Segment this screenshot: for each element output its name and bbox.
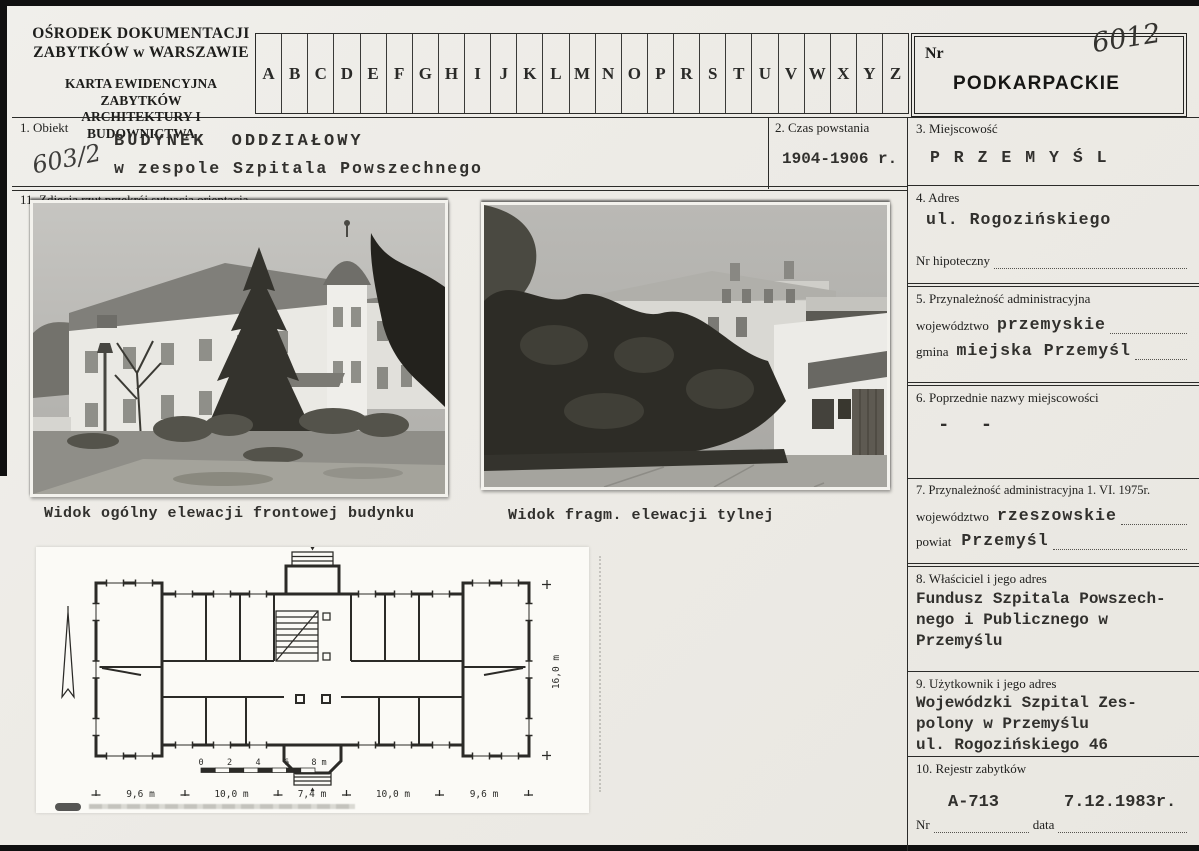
register-number-value: A-713: [948, 793, 999, 812]
photo-rear-elevation: [481, 202, 890, 490]
field-town-label: 3. Miejscowość: [916, 121, 1191, 137]
object-handwritten-number: 603/2: [30, 139, 103, 180]
voivodeship-stamp: PODKARPACKIE: [953, 73, 1120, 95]
user-line2: polony w Przemyślu: [916, 714, 1191, 735]
alphabet-letter-P: P: [647, 34, 673, 113]
alphabet-letter-I: I: [464, 34, 490, 113]
dim-right: 16,0 m: [551, 655, 562, 690]
alphabet-letter-K: K: [516, 34, 542, 113]
scale-tick-4: 4: [255, 758, 260, 768]
fold-mark: [599, 556, 601, 792]
alphabet-letter-M: M: [569, 34, 595, 113]
field-date-label: 2. Czas powstania: [775, 120, 869, 136]
field-user: 9. Użytkownik i jego adres Wojewódzki Sz…: [908, 672, 1199, 757]
alphabet-letter-S: S: [699, 34, 725, 113]
dimension-row: 9,6 m 10,0 m 7,4 m 10,0 m 9,6 m: [92, 789, 534, 800]
alphabet-letter-A: A: [256, 34, 281, 113]
photo2-caption: Widok fragm. elewacji tylnej: [508, 507, 774, 524]
number-box: Nr 6012 PODKARPACKIE: [914, 36, 1184, 114]
nr-handwritten-value: 6012: [1090, 18, 1163, 59]
field-address-label: 4. Adres: [916, 190, 1191, 206]
stamp-logo: [55, 803, 81, 811]
field-previous-names-label: 6. Poprzednie nazwy miejscowości: [916, 390, 1191, 406]
dim-2: 10,0 m: [214, 789, 249, 800]
dim-4: 10,0 m: [376, 789, 411, 800]
organization-line2: ZABYTKÓW w WARSZAWIE: [28, 43, 254, 62]
alphabet-letter-U: U: [751, 34, 777, 113]
organization-line1: OŚRODEK DOKUMENTACJI: [28, 24, 254, 43]
scan-edge-top: [0, 0, 1199, 6]
alphabet-letter-R: R: [673, 34, 699, 113]
alphabet-letter-C: C: [307, 34, 333, 113]
field-object-label: 1. Obiekt: [20, 120, 68, 136]
alphabet-letter-W: W: [804, 34, 830, 113]
address-value: ul. Rogozińskiego: [926, 210, 1191, 229]
voivodeship-1975-line: [1121, 512, 1187, 525]
field-administrative-label: 5. Przynależność administracyjna: [916, 291, 1191, 307]
small-window: [812, 399, 834, 429]
register-date-value: 7.12.1983r.: [1064, 793, 1176, 812]
photo-front-elevation: [30, 200, 448, 497]
gmina-line: [1135, 347, 1187, 360]
dim-5: 9,6 m: [470, 789, 499, 800]
entrance-steps: [292, 547, 333, 791]
user-line3: ul. Rogozińskiego 46: [916, 735, 1191, 756]
alphabet-letter-Y: Y: [856, 34, 882, 113]
scale-tick-8: 8 m: [311, 758, 326, 768]
card-title-line1: KARTA EWIDENCYJNA ZABYTKÓW: [28, 76, 254, 109]
previous-names-value: - -: [938, 414, 1191, 436]
field-owner: 8. Właściciel i jego adres Fundusz Szpit…: [908, 567, 1199, 672]
field-administrative-1975-label: 7. Przynależność administracyjna 1. VI. …: [916, 483, 1191, 498]
field-owner-label: 8. Właściciel i jego adres: [916, 571, 1191, 587]
owner-line2: nego i Publicznego w: [916, 610, 1191, 631]
dimension-right: 16,0 m: [542, 580, 562, 760]
scale-tick-0: 0: [198, 758, 203, 768]
mortgage-number-line: [994, 256, 1187, 269]
north-arrow: [62, 606, 74, 697]
powiat-value: Przemyśl: [961, 531, 1048, 550]
section-divider: [12, 186, 907, 191]
alphabet-letter-E: E: [360, 34, 386, 113]
record-card: OŚRODEK DOKUMENTACJI ZABYTKÓW w WARSZAWI…: [0, 0, 1199, 851]
dim-3: 7,4 m: [298, 789, 327, 800]
gmina-label: gmina: [916, 344, 949, 360]
field-administrative: 5. Przynależność administracyjna wojewód…: [908, 287, 1199, 386]
field-previous-names: 6. Poprzednie nazwy miejscowości - -: [908, 386, 1199, 479]
alphabet-strip: ABCDEFGHIJKLMNOPRSTUVWXYZ: [255, 33, 909, 114]
field-date-of-origin: 2. Czas powstania 1904-1906 r.: [768, 117, 908, 189]
illegible-footer-stamp: [55, 801, 355, 812]
right-column: 3. Miejscowość P R Z E M Y Ś L 4. Adres …: [907, 117, 1199, 851]
field-address: 4. Adres ul. Rogozińskiego Nr hipoteczny: [908, 186, 1199, 287]
voivodeship-label: województwo: [916, 318, 989, 334]
organization-name: OŚRODEK DOKUMENTACJI ZABYTKÓW w WARSZAWI…: [28, 24, 254, 62]
alphabet-letter-X: X: [830, 34, 856, 113]
field-register: 10. Rejestr zabytków A-713 7.12.1983r. N…: [908, 757, 1199, 851]
photo-front-elevation-image: [33, 203, 445, 494]
window-openings: [93, 580, 533, 760]
voivodeship-1975-label: województwo: [916, 509, 989, 525]
field-user-label: 9. Użytkownik i jego adres: [916, 676, 1191, 692]
stamp-text-illegible: [89, 804, 355, 809]
field-town: 3. Miejscowość P R Z E M Y Ś L: [908, 117, 1199, 186]
alphabet-letter-B: B: [281, 34, 307, 113]
photo-rear-elevation-image: [484, 205, 887, 487]
user-line1: Wojewódzki Szpital Zes-: [916, 693, 1191, 714]
staircase: [276, 611, 330, 661]
field-object: 1. Obiekt BUDYNEK ODDZIAŁOWY w zespole S…: [12, 117, 768, 189]
alphabet-letter-V: V: [778, 34, 804, 113]
outer-walls: [96, 566, 529, 773]
scale-bar: 0 2 4 6 8 m: [198, 758, 326, 773]
alphabet-letter-L: L: [542, 34, 568, 113]
field-administrative-1975: 7. Przynależność administracyjna 1. VI. …: [908, 479, 1199, 567]
powiat-line: [1053, 537, 1187, 550]
corner-turret: [327, 283, 367, 415]
alphabet-letter-D: D: [333, 34, 359, 113]
object-name: BUDYNEK ODDZIAŁOWY: [114, 132, 364, 151]
date-of-origin-value: 1904-1906 r.: [782, 150, 897, 168]
alphabet-letter-O: O: [621, 34, 647, 113]
alphabet-letter-J: J: [490, 34, 516, 113]
alphabet-letter-T: T: [725, 34, 751, 113]
voivodeship-line: [1110, 321, 1187, 334]
owner-line3: Przemyślu: [916, 631, 1191, 652]
town-value: P R Z E M Y Ś L: [930, 148, 1191, 167]
field-register-label: 10. Rejestr zabytków: [916, 761, 1191, 777]
voivodeship-value: przemyskie: [997, 315, 1106, 334]
alphabet-letter-N: N: [595, 34, 621, 113]
alphabet-letter-F: F: [386, 34, 412, 113]
floor-plan: 0 2 4 6 8 m: [36, 547, 589, 813]
nr-label: Nr: [925, 45, 944, 63]
scale-tick-6: 6: [284, 758, 289, 768]
voivodeship-1975-value: rzeszowskie: [997, 506, 1117, 525]
alphabet-letter-Z: Z: [882, 34, 908, 113]
scan-edge-left: [0, 6, 7, 476]
photo1-caption: Widok ogólny elewacji frontowej budynku: [44, 505, 415, 522]
owner-line1: Fundusz Szpitala Powszech-: [916, 589, 1191, 610]
object-complex: w zespole Szpitala Powszechnego: [114, 159, 483, 178]
alphabet-letter-H: H: [438, 34, 464, 113]
alphabet-letter-G: G: [412, 34, 438, 113]
dim-1: 9,6 m: [126, 789, 155, 800]
mortgage-number-label: Nr hipoteczny: [916, 253, 990, 269]
scale-tick-2: 2: [227, 758, 232, 768]
floor-plan-drawing: 0 2 4 6 8 m: [36, 547, 589, 813]
powiat-label: powiat: [916, 534, 951, 550]
gmina-value: miejska Przemyśl: [957, 341, 1131, 360]
